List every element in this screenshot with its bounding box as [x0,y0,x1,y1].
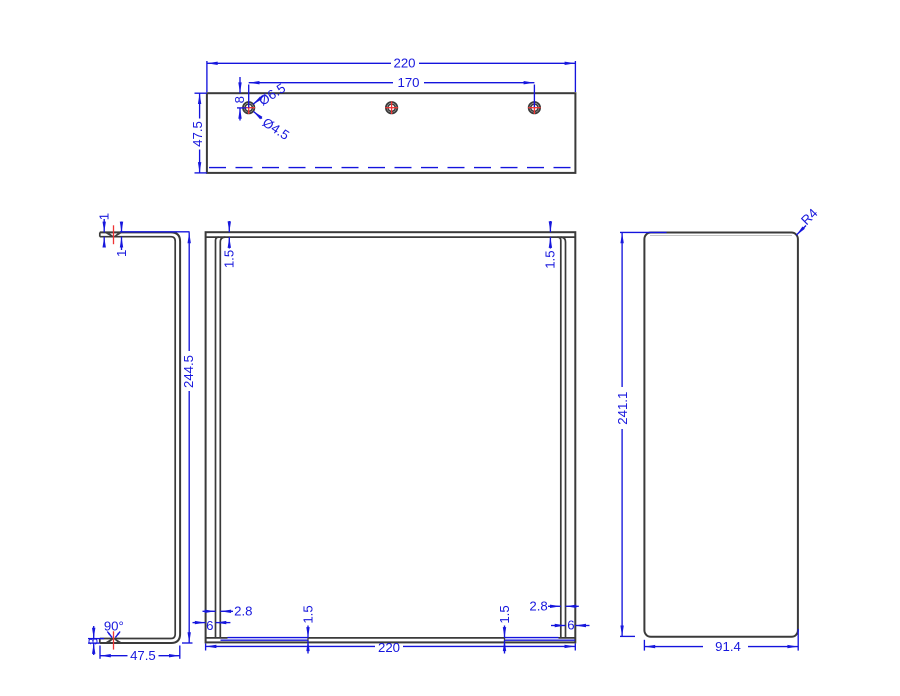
svg-text:1.5: 1.5 [497,605,512,623]
svg-text:1: 1 [97,213,112,220]
svg-text:241.1: 241.1 [615,392,630,425]
svg-text:3: 3 [86,638,101,645]
svg-text:6: 6 [206,618,213,633]
svg-text:R4: R4 [798,205,821,228]
svg-text:Ø4.5: Ø4.5 [260,115,292,143]
svg-text:1.5: 1.5 [300,605,315,623]
svg-text:Ø6.5: Ø6.5 [256,80,288,108]
svg-text:91.4: 91.4 [715,639,741,654]
svg-text:47.5: 47.5 [190,121,205,147]
svg-text:90°: 90° [104,619,124,634]
svg-text:170: 170 [397,75,419,90]
svg-text:1: 1 [114,250,129,257]
svg-text:220: 220 [393,55,415,70]
svg-text:2.8: 2.8 [529,599,547,614]
svg-text:8: 8 [232,96,247,103]
svg-text:2.8: 2.8 [234,603,252,618]
svg-text:6: 6 [567,618,574,633]
svg-text:220: 220 [378,640,400,655]
svg-text:47.5: 47.5 [130,648,156,663]
svg-text:244.5: 244.5 [181,355,196,388]
svg-text:1.5: 1.5 [222,250,237,268]
svg-text:1.5: 1.5 [543,250,558,268]
